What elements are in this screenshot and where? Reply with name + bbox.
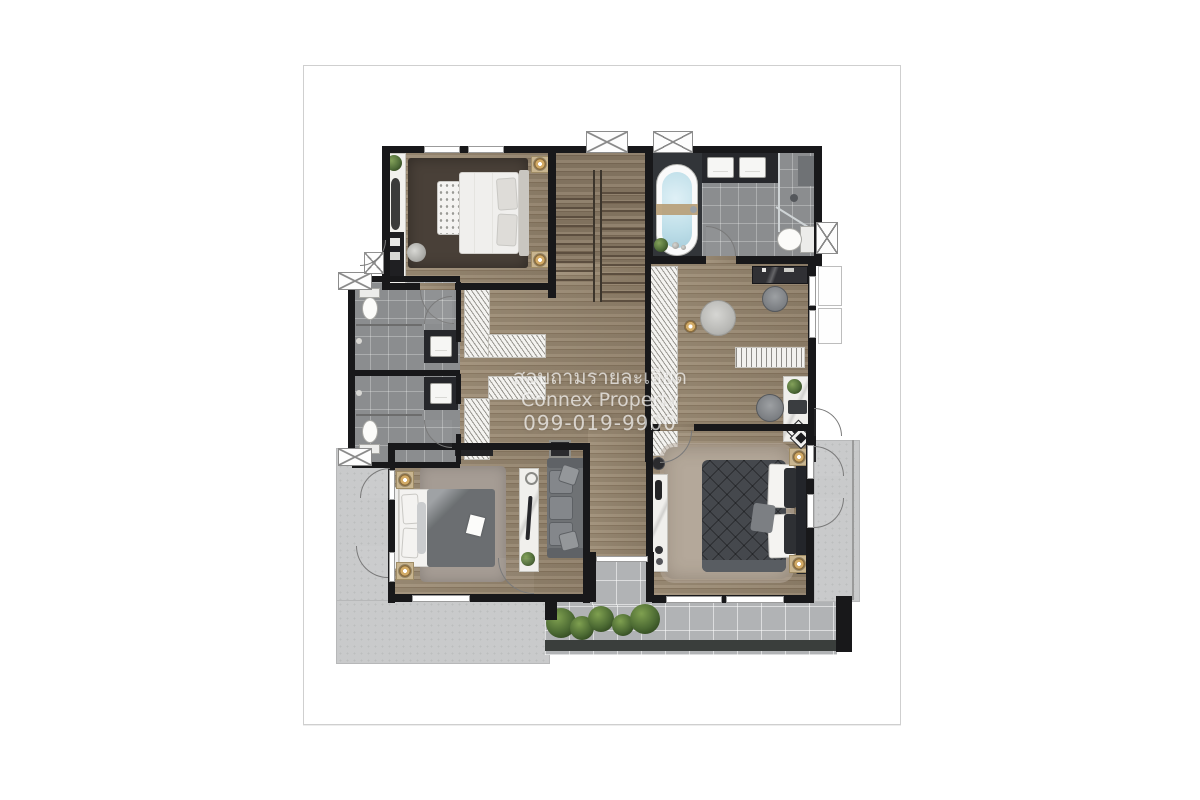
window-x (586, 131, 628, 153)
foot-bench-tufted (437, 181, 461, 235)
tv-item (389, 238, 400, 246)
door-gap (706, 256, 736, 264)
faucet-icon (356, 390, 362, 396)
faucet-icon (356, 338, 362, 344)
lamp-icon (792, 557, 806, 571)
shower-partition (356, 414, 422, 416)
balcony-column (836, 596, 852, 652)
dressing-counter (752, 266, 808, 284)
decor-vase (655, 480, 662, 500)
bolster-pillow (417, 502, 426, 554)
window-x (338, 272, 372, 290)
sink (430, 383, 452, 404)
toilet-bowl (362, 420, 378, 443)
lamp-icon (398, 473, 412, 487)
bottom-terrace (336, 600, 550, 664)
corridor-floor (588, 430, 652, 558)
wall-bath-a-right (456, 282, 461, 342)
ledge-box (818, 266, 842, 306)
decor-item (656, 558, 663, 565)
balcony-door-glass (807, 445, 814, 479)
watermark-line-thai: สอบถามรายละเอียด (450, 366, 750, 389)
wall-stair-right (645, 146, 653, 262)
pillow (496, 213, 518, 246)
shower-partition (356, 324, 422, 326)
tub-faucet-icon (690, 206, 697, 213)
wall-stair-left (548, 146, 556, 298)
closet-rail (464, 284, 490, 358)
window (809, 276, 816, 306)
wall-bl-right (583, 443, 590, 603)
stair-run-right (601, 192, 646, 302)
counter-item (784, 268, 794, 272)
wall-bath-bottom (650, 256, 822, 264)
balcony-rail (852, 440, 854, 600)
sink (707, 157, 734, 178)
pillow (496, 177, 518, 210)
lamp-icon (792, 450, 806, 464)
watermark-line-brand: Connex Property (450, 389, 750, 412)
lamp-icon (533, 157, 547, 171)
window (809, 310, 816, 338)
tv-item (389, 252, 400, 260)
toilet-bowl (362, 297, 378, 320)
wall-bl-top (393, 443, 588, 450)
bookshelf (735, 347, 805, 368)
toilet-tank (800, 226, 815, 253)
plant-icon (787, 379, 802, 394)
window (596, 556, 648, 562)
headboard-tl (519, 170, 529, 256)
window-x (653, 131, 693, 153)
planter-strip (545, 640, 837, 651)
bed-bl-duvet (427, 489, 495, 567)
toilet-bowl (777, 228, 802, 251)
wall-baths-mid (352, 370, 460, 376)
round-pouf (700, 300, 736, 336)
plant-icon (654, 238, 668, 252)
balcony-door-glass (807, 494, 814, 528)
window (389, 552, 395, 582)
chair (762, 286, 788, 312)
laptop-icon (788, 400, 807, 414)
bath-accessory (681, 245, 686, 250)
bath-accessory (672, 242, 679, 249)
bush-icon (630, 604, 660, 634)
lamp-icon (398, 564, 412, 578)
counter-item (762, 268, 766, 272)
window (726, 596, 784, 603)
sofa-cushion (549, 496, 573, 520)
window (468, 146, 504, 153)
sink (430, 336, 452, 357)
stair-run-left (556, 198, 593, 288)
window (424, 146, 460, 153)
window-x (816, 222, 838, 254)
window (412, 595, 470, 602)
lamp-icon (533, 253, 547, 267)
window-x (338, 448, 372, 466)
sink (739, 157, 766, 178)
wall-notch-right (648, 552, 654, 602)
bench-dark (391, 178, 400, 230)
bush-icon (588, 606, 614, 632)
door-gap (420, 283, 455, 290)
closet-rail (488, 334, 546, 358)
decor-tray (525, 472, 538, 485)
watermark: สอบถามรายละเอียด Connex Property 099-019… (450, 366, 750, 435)
floor-lamp-icon (684, 320, 697, 333)
watermark-line-phone: 099-019-9900 (450, 412, 750, 435)
shower-drain-icon (790, 194, 798, 202)
window (666, 596, 722, 603)
stair-center-rail (593, 170, 602, 302)
balcony-notch (592, 560, 652, 605)
balcony-end-wall (545, 596, 557, 620)
throw-pillow (750, 503, 776, 534)
ledge-box (818, 308, 842, 344)
shower-glass (778, 152, 780, 232)
stool (407, 243, 426, 262)
desk-chair (756, 394, 784, 422)
wall-tl-bottom (382, 283, 556, 290)
floor-plan-canvas: สอบถามรายละเอียด Connex Property 099-019… (0, 0, 1200, 800)
decor-item (655, 546, 663, 554)
duvet-fold (702, 560, 786, 572)
